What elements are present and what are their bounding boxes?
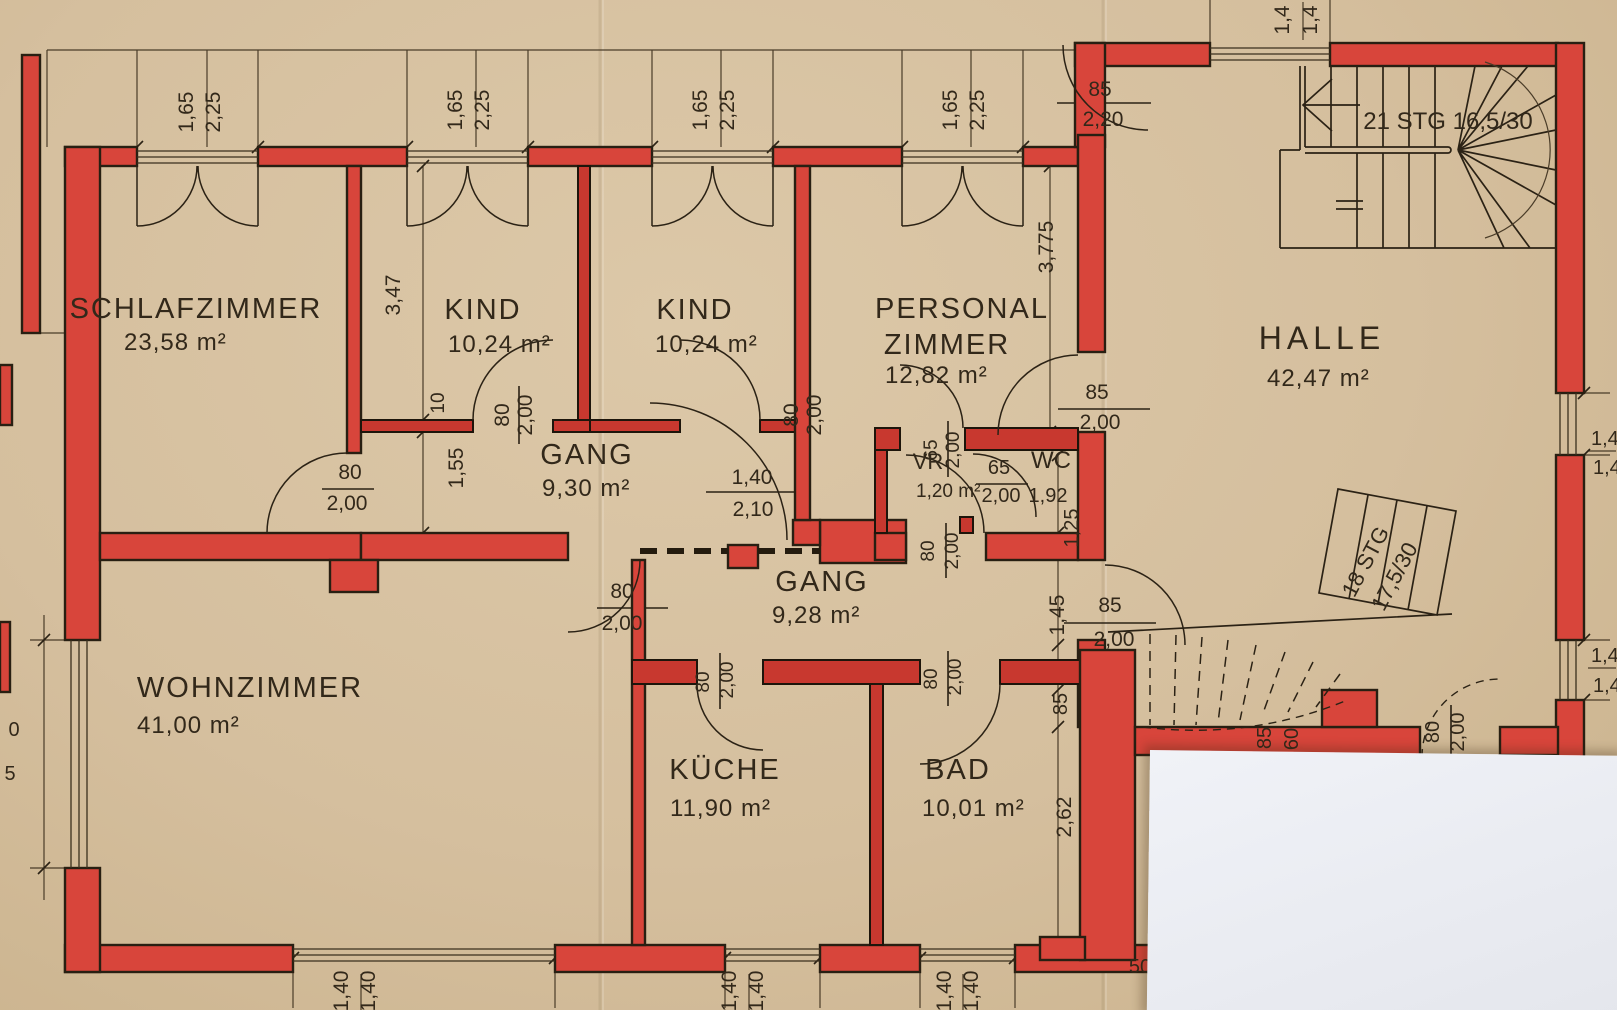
dimension-label: 2,62 <box>1053 797 1076 838</box>
room-halle: HALLE <box>1259 320 1385 356</box>
dimension-label: 2,10 <box>733 498 774 521</box>
room-bad-area: 10,01 m² <box>922 795 1025 822</box>
dimension-label: 2,00 <box>803 395 826 436</box>
dimension-label: 1,65 <box>939 90 962 131</box>
room-kueche: KÜCHE <box>669 754 781 786</box>
dimension-label: 2,00 <box>1447 713 1469 752</box>
room-wc-area: 1,92 <box>1029 485 1068 507</box>
dimension-label: 1,40 <box>933 971 956 1010</box>
dimension-label: 1,40 <box>732 466 773 489</box>
dimension-label: 1,65 <box>175 92 198 133</box>
dimension-label: 2,00 <box>982 485 1021 507</box>
dimension-label: 80 <box>610 580 633 603</box>
room-kind-1-area: 10,24 m² <box>448 331 551 358</box>
dimension-label: 80 <box>1422 721 1444 743</box>
room-personalzimmer: PERSONAL <box>875 293 1049 325</box>
dimension-label: 2,20 <box>1083 108 1124 131</box>
room-halle-area: 42,47 m² <box>1267 365 1370 392</box>
dimension-label: 2,00 <box>602 612 643 635</box>
dimension-label: 80 <box>921 668 942 689</box>
dimension-label: 65 <box>921 439 942 460</box>
room-bad: BAD <box>925 754 991 786</box>
room-kind-1: KIND <box>444 294 521 326</box>
dimension-label: 2,25 <box>471 90 494 131</box>
stair-label-21stg: 21 STG 16,5/30 <box>1363 108 1532 135</box>
room-kind-2-area: 10,24 m² <box>655 331 758 358</box>
room-schlafzimmer-area: 23,58 m² <box>124 329 227 356</box>
dimension-label: 80 <box>491 403 514 426</box>
dimension-label: 1,4 <box>1593 675 1617 697</box>
dimension-label: 65 <box>988 457 1010 479</box>
dimension-label: 85 <box>1050 693 1072 715</box>
floor-plan-scan: SCHLAFZIMMER 23,58 m² KIND 10,24 m² KIND… <box>0 0 1617 1010</box>
dimension-label: 5 <box>4 763 15 785</box>
dimension-label: 1,65 <box>444 90 467 131</box>
room-gang-1: GANG <box>540 439 633 471</box>
dimension-label: 10 <box>428 392 449 413</box>
room-personalzimmer-line2: ZIMMER <box>884 329 1010 361</box>
dimension-label: 1,65 <box>689 90 712 131</box>
dimension-label: 85 <box>1254 727 1276 749</box>
dimension-label: 1,25 <box>1061 509 1083 548</box>
dimension-label: 1,4 <box>1299 5 1322 35</box>
dimension-label: 60 <box>1281 728 1303 750</box>
room-schlafzimmer: SCHLAFZIMMER <box>70 293 323 325</box>
room-wohnzimmer: WOHNZIMMER <box>137 672 363 704</box>
dimension-label: 80 <box>918 540 939 561</box>
room-wc: WC <box>1031 447 1071 474</box>
dimension-label: 1,40 <box>330 971 353 1010</box>
dimension-label: 2,00 <box>1080 411 1121 434</box>
dimension-label: 2,00 <box>514 395 537 436</box>
dimension-label: 1,40 <box>960 971 983 1010</box>
room-wohnzimmer-area: 41,00 m² <box>137 712 240 739</box>
dimension-label: 80 <box>338 461 361 484</box>
room-gang-2: GANG <box>775 566 868 598</box>
dimension-label: 1,4 <box>1591 428 1617 450</box>
room-gang-1-area: 9,30 m² <box>542 475 630 502</box>
dimension-label: 1,40 <box>718 971 741 1010</box>
dimension-label: 1,40 <box>357 971 380 1010</box>
dimension-label: 85 <box>1085 381 1108 404</box>
room-kueche-area: 11,90 m² <box>670 795 771 822</box>
dimension-label: 80 <box>780 403 803 426</box>
room-vr-area: 1,20 m² <box>916 481 980 502</box>
room-kind-2: KIND <box>656 294 733 326</box>
dimension-label: 3,47 <box>382 275 405 316</box>
staircase-18stg <box>1108 489 1456 730</box>
privacy-overlay-paper <box>1147 750 1617 1010</box>
dimension-label: 85 <box>1098 594 1121 617</box>
dimension-label: 2,00 <box>327 492 368 515</box>
dimension-label: 85 <box>1088 78 1111 101</box>
dimension-label: 1,4 <box>1593 457 1617 479</box>
dimension-label: 0 <box>8 719 19 741</box>
dimension-label: 2,00 <box>942 533 963 570</box>
dimension-label: 1,55 <box>445 448 468 489</box>
dimension-label: 1,4 <box>1271 5 1294 35</box>
dimension-label: 2,00 <box>717 662 738 699</box>
dimension-label: 2,25 <box>716 90 739 131</box>
dimension-label: 2,00 <box>943 432 964 469</box>
dimension-label: 1,45 <box>1046 595 1069 636</box>
dimension-label: 2,00 <box>1094 628 1135 651</box>
staircase-21stg <box>1280 62 1556 248</box>
dimension-label: 1,40 <box>745 971 768 1010</box>
dimension-label: 2,25 <box>966 90 989 131</box>
dimension-label: 1,4 <box>1591 645 1617 667</box>
room-gang-2-area: 9,28 m² <box>772 602 860 629</box>
dimension-label: 3,775 <box>1035 221 1058 274</box>
dimension-label: 2,25 <box>202 92 225 133</box>
room-personalzimmer-area: 12,82 m² <box>885 362 988 389</box>
dimension-label: 80 <box>693 671 714 692</box>
dimension-label: 2,00 <box>945 659 966 696</box>
